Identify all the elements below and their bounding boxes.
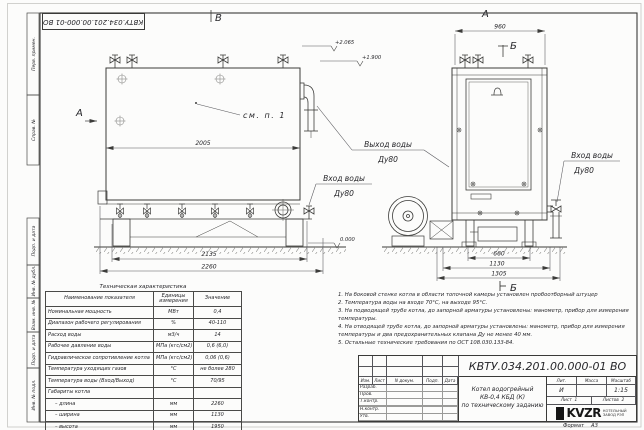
- drain-valve-icon: [117, 204, 124, 218]
- product-title-line: по техническому заданию: [462, 403, 544, 411]
- spec-value: 0,4: [194, 307, 242, 319]
- elev-zero: 0.000: [340, 237, 356, 243]
- dim-960: 960: [494, 24, 506, 31]
- drain-valve-icon: [144, 204, 151, 218]
- spec-value: [194, 387, 242, 399]
- section-a-label: А: [75, 108, 83, 119]
- elev-mid: +1.900: [362, 55, 382, 61]
- spec-value: 14: [194, 330, 242, 342]
- product-title-line: КВ-0,4 КБД (К): [480, 395, 525, 403]
- drain-valve-icon: [247, 204, 254, 218]
- format-label-block: ФорматА3: [563, 423, 605, 429]
- inlet-right-dn-label: Ду80: [573, 166, 594, 175]
- side-top-valves: [110, 55, 288, 68]
- spec-row: Температура уходящих газов°Сне более 280: [46, 364, 242, 376]
- lit-header: Лит.: [547, 377, 577, 384]
- margin-label: Справ. №: [31, 119, 37, 141]
- spec-name: – длина: [46, 399, 154, 411]
- spec-row: Номинальная мощностьМВт0,4: [46, 307, 242, 319]
- spec-unit: °С: [154, 376, 194, 388]
- margin-label: Инв. № подл.: [31, 379, 37, 410]
- signature-role: Н.контр.: [359, 407, 387, 413]
- logo-caption-line: ЗАВОД РЭП: [603, 413, 627, 417]
- sheet-number: Лист 1: [547, 397, 592, 404]
- spec-row: Температура воды (Вход/Выход)°С70/95: [46, 376, 242, 388]
- dim-1305: 1305: [491, 271, 506, 278]
- sheets-value: 2: [622, 398, 625, 403]
- spec-row: Габариты котла: [46, 387, 242, 399]
- revision-spare-grid: [359, 356, 459, 377]
- drawing-sheet: Перв. примен. Справ. № Подп. и дата Инв.…: [0, 0, 644, 430]
- outlet-dn-label: Ду80: [377, 155, 398, 164]
- signature-columns: Изм. Лист N докум. Подп. Дата Разраб. Пр…: [359, 377, 459, 421]
- format-value: А3: [591, 423, 598, 429]
- section-b-mark: Б: [510, 41, 517, 52]
- spec-name: Диапазон рабочего регулирования: [46, 318, 154, 330]
- spec-row: – длинамм2260: [46, 399, 242, 411]
- spec-row: Гидравлическое сопротивление котлаМПа (к…: [46, 353, 242, 365]
- spec-name: Гидравлическое сопротивление котла: [46, 353, 154, 365]
- spec-row: Рабочее давление водыМПа (кгс/см2)0,6 (6…: [46, 341, 242, 353]
- drain-valve-icon: [179, 204, 186, 218]
- title-block: КВТУ.034.201.00.000-01 ВО Изм. Лист N до…: [358, 355, 637, 422]
- spec-unit: мм: [154, 422, 194, 430]
- inlet-valve-icon: [304, 206, 314, 219]
- front-top-valves: [460, 55, 533, 68]
- rotated-doc-number-box: КВТУ.034.201.00.000-01 ВО: [42, 13, 145, 30]
- sheet-label: Лист: [561, 398, 572, 403]
- spec-value: 0,6 (6,0): [194, 341, 242, 353]
- signature-role: Т.контр.: [359, 399, 387, 405]
- format-label: Формат: [563, 423, 584, 429]
- spec-row: Диапазон рабочего регулирования%40-110: [46, 318, 242, 330]
- signature-row: Утв.: [359, 414, 458, 421]
- note-line: 4. На отводящей трубе котла, до запорной…: [338, 324, 635, 340]
- col-header: Дата: [443, 377, 458, 384]
- valve-icon: [460, 55, 470, 68]
- side-view-body: [98, 68, 312, 246]
- note-line: 2. Температура воды на входе 70°С, на вы…: [338, 300, 635, 308]
- scale-header: Масштаб: [607, 377, 636, 384]
- title-block-bottom: Изм. Лист N докум. Подп. Дата Разраб. Пр…: [359, 377, 636, 421]
- flue-fan: [389, 197, 454, 247]
- notes-block: 1. На боковой стенке котла в области топ…: [338, 292, 635, 348]
- valve-icon: [218, 55, 228, 68]
- spec-unit: [154, 387, 194, 399]
- pipe-labels: Выход воды Ду80 Вход воды Ду80 Вход воды…: [323, 140, 613, 198]
- signature-row: Т.контр.: [359, 399, 458, 406]
- margin-stamp-labels: Перв. примен. Справ. № Подп. и дата Инв.…: [31, 37, 37, 410]
- spec-row: – высотамм1950: [46, 422, 242, 430]
- burner-flange: [272, 199, 294, 221]
- title-block-right: Лит. Масса Масштаб И 1:15 Лист 1 Листов …: [547, 377, 636, 421]
- elevation-marks: [302, 46, 363, 248]
- sheets-label: Листов: [603, 398, 619, 403]
- rotated-doc-number: КВТУ.034.201.00.000-01 ВО: [43, 18, 143, 26]
- spec-header: Наименование показателя: [46, 292, 154, 307]
- col-header: Изм.: [359, 377, 373, 384]
- spec-table-title: Техническая характеристика: [45, 284, 241, 290]
- spec-name: Температура воды (Вход/Выход): [46, 376, 154, 388]
- sheet-value: 1: [574, 398, 577, 403]
- mass-value: [577, 385, 607, 396]
- margin-label: Подп. и дата: [31, 225, 37, 256]
- signature-row: Разраб.: [359, 385, 458, 392]
- valve-icon: [473, 55, 483, 68]
- dim-660: 660: [493, 251, 505, 258]
- spec-header: Единицы измерения: [154, 292, 194, 307]
- lifting-lugs: [115, 74, 226, 127]
- spec-name: – высота: [46, 422, 154, 430]
- spec-row: – ширинамм1130: [46, 410, 242, 422]
- logo-text: KVZR: [566, 407, 601, 419]
- margin-label: Взам. инв. №: [31, 299, 37, 330]
- signature-role: Разраб.: [359, 385, 387, 391]
- dim-2135: 2135: [201, 251, 216, 258]
- dim-2260: 2260: [201, 264, 216, 271]
- doc-number: КВТУ.034.201.00.000-01 ВО: [459, 356, 636, 377]
- spec-unit: °С: [154, 364, 194, 376]
- margin-label: Перв. примен.: [31, 37, 37, 71]
- spec-table: Наименование показателя Единицы измерени…: [45, 291, 242, 430]
- front-view: [389, 55, 563, 247]
- col-header: Подп.: [423, 377, 443, 384]
- spec-unit: МПа (кгс/см2): [154, 341, 194, 353]
- valve-icon: [278, 55, 288, 68]
- spec-unit: мм: [154, 399, 194, 411]
- spec-unit: мм: [154, 410, 194, 422]
- drain-valves: [117, 204, 254, 218]
- dim-2005: 2005: [195, 140, 210, 147]
- spec-name: Номинальная мощность: [46, 307, 154, 319]
- spec-value: 0,06 (0,6): [194, 353, 242, 365]
- inlet-right-label: Вход воды: [571, 151, 613, 160]
- signature-header-row: Изм. Лист N докум. Подп. Дата: [359, 377, 458, 385]
- drain-valve-icon: [212, 204, 219, 218]
- spec-value: 1130: [194, 410, 242, 422]
- spec-row: Расход водым3/ч14: [46, 330, 242, 342]
- lit-mass-scale-headers: Лит. Масса Масштаб: [547, 377, 636, 385]
- inlet-label: Вход воды: [323, 174, 365, 183]
- spec-value: 2260: [194, 399, 242, 411]
- side-view: [98, 55, 318, 246]
- outlet-label: Выход воды: [364, 140, 412, 149]
- spec-name: Температура уходящих газов: [46, 364, 154, 376]
- outlet-elbow-pipe: [300, 83, 318, 138]
- note-line: 1. На боковой стенке котла в области топ…: [338, 292, 635, 300]
- spec-table-block: Техническая характеристика Наименование …: [45, 284, 241, 430]
- logo-mark-icon: [556, 407, 564, 420]
- margin-label: Инв. № дубл.: [31, 266, 37, 297]
- product-title-line: Котел водогрейный: [472, 387, 534, 395]
- inlet-dn-label: Ду80: [333, 189, 354, 198]
- scale-value: 1:15: [607, 385, 636, 396]
- valve-icon: [523, 55, 533, 68]
- signature-row: Н.контр.: [359, 407, 458, 414]
- spec-unit: м3/ч: [154, 330, 194, 342]
- front-dimension-texts: 960 660 1130 1305: [489, 24, 506, 278]
- spec-name: Рабочее давление воды: [46, 341, 154, 353]
- spec-name: Расход воды: [46, 330, 154, 342]
- product-title: Котел водогрейный КВ-0,4 КБД (К) по техн…: [459, 377, 547, 421]
- spec-unit: МПа (кгс/см2): [154, 353, 194, 365]
- lit-mass-scale-values: И 1:15: [547, 385, 636, 397]
- spec-unit: МВт: [154, 307, 194, 319]
- spec-header-row: Наименование показателя Единицы измерени…: [46, 292, 242, 307]
- spec-name: Габариты котла: [46, 387, 154, 399]
- door-handle-icon: [491, 88, 503, 95]
- dim-1130: 1130: [489, 261, 504, 268]
- spec-name: – ширина: [46, 410, 154, 422]
- view-b-label: В: [215, 13, 222, 24]
- sheets-total: Листов 2: [592, 397, 636, 404]
- note-line: 5. Остальные технические требования по О…: [338, 340, 635, 348]
- col-header: N докум.: [387, 377, 423, 384]
- mass-header: Масса: [577, 377, 607, 384]
- spec-unit: %: [154, 318, 194, 330]
- company-logo: KVZR КОТЕЛЬНЫЙ ЗАВОД РЭП: [547, 405, 636, 421]
- signature-role: Утв.: [359, 414, 387, 420]
- spec-value: не более 280: [194, 364, 242, 376]
- callout-see-item: см. п. 1: [195, 102, 286, 120]
- lit-value: И: [547, 385, 577, 396]
- spec-value: 40-110: [194, 318, 242, 330]
- door-bolts: [457, 128, 542, 215]
- sheet-counts: Лист 1 Листов 2: [547, 397, 636, 405]
- spec-header: Значение: [194, 292, 242, 307]
- elev-top: +2.065: [335, 40, 355, 46]
- callout-text: см. п. 1: [243, 111, 286, 120]
- title-block-top: КВТУ.034.201.00.000-01 ВО: [359, 356, 636, 377]
- front-view-label: А: [481, 9, 489, 20]
- logo-caption: КОТЕЛЬНЫЙ ЗАВОД РЭП: [603, 409, 627, 417]
- col-header: Лист: [373, 377, 387, 384]
- valve-icon: [110, 55, 120, 68]
- signature-row: Пров.: [359, 392, 458, 399]
- spec-value: 1950: [194, 422, 242, 430]
- inlet-valve-assembly: [547, 200, 562, 238]
- note-line: 3. На подводящей трубе котла, до запорно…: [338, 308, 635, 324]
- signature-role: Пров.: [359, 392, 387, 398]
- margin-label: Подп. и дата: [31, 334, 37, 365]
- spec-value: 70/95: [194, 376, 242, 388]
- valve-icon: [127, 55, 137, 68]
